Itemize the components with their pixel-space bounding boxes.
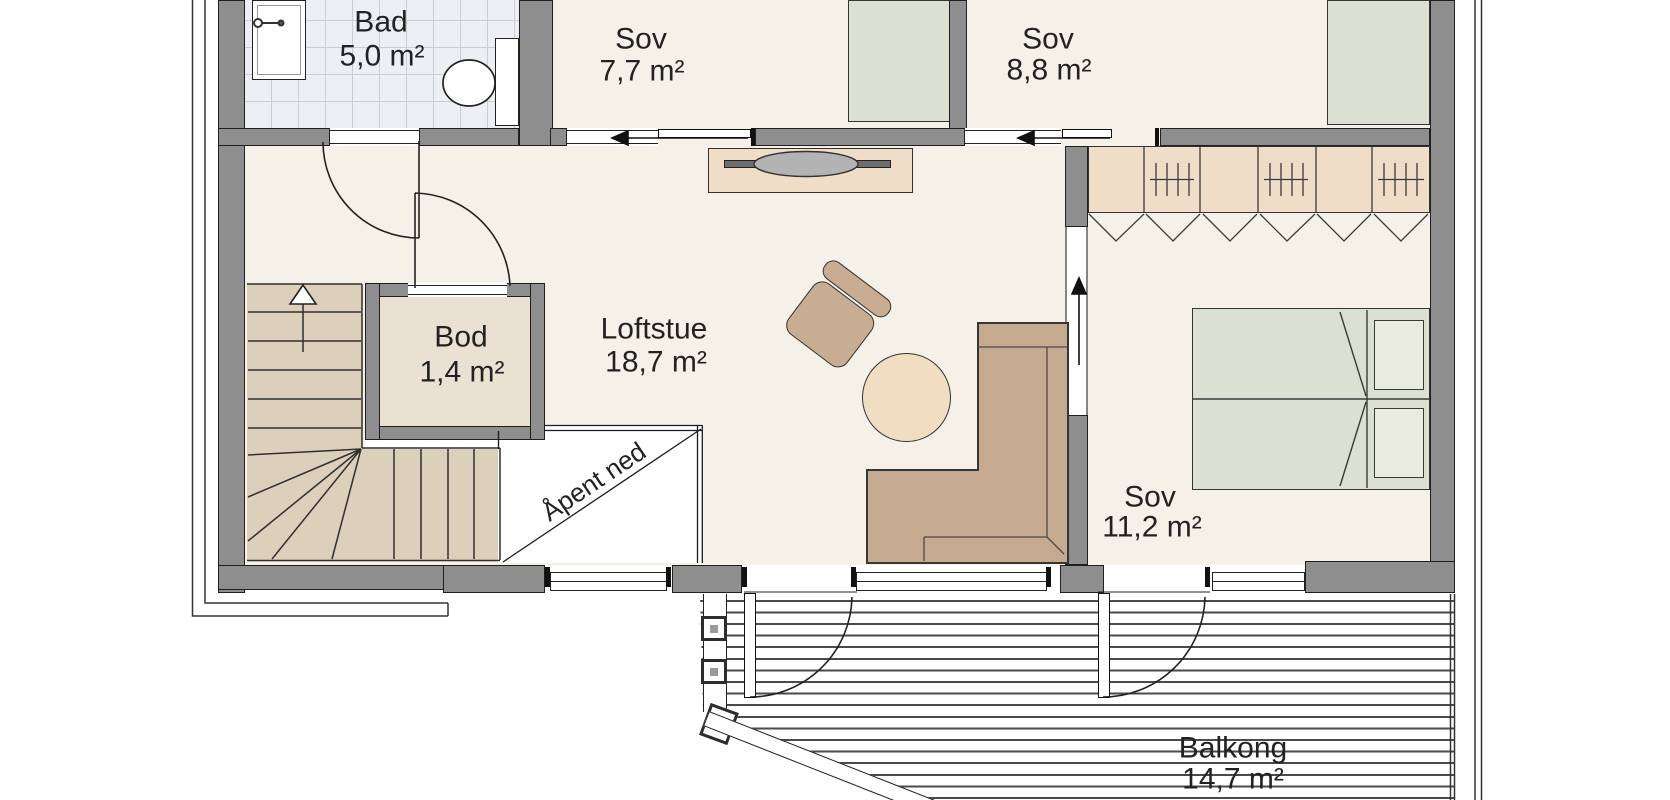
window-south-2: [856, 572, 1047, 591]
sliding-leaf-sov77: [658, 129, 751, 138]
room-area-sov-88: 8,8 m²: [1006, 54, 1091, 86]
shower-tub-inner: [257, 5, 301, 75]
window-south-1: [550, 572, 667, 591]
wall-sov77-sov88: [949, 0, 967, 146]
sov112-pocket-opening: [1065, 227, 1088, 415]
room-label-sov-77: Sov: [615, 23, 667, 55]
stairs-lower-run: [362, 448, 500, 560]
exterior-wall-right: [1430, 0, 1455, 593]
wall-bottom-pillar-c: [1060, 565, 1104, 593]
window-south-3: [1212, 572, 1305, 591]
room-area-sov-77: 7,7 m²: [599, 55, 684, 87]
window-jamb: [851, 567, 856, 587]
wall-bad-sov: [519, 0, 553, 146]
balcony-railing-left: [703, 594, 727, 712]
bod-wall-bottom: [365, 426, 545, 440]
sov77-door-opening: [567, 128, 658, 146]
room-area-balkong: 14,7 m²: [1182, 763, 1284, 795]
bod-door-opening: [408, 283, 507, 297]
room-area-loftstue: 18,7 m²: [605, 346, 707, 378]
wall-top-a: [218, 128, 330, 146]
window-jamb: [742, 567, 747, 587]
railing-post: [701, 616, 727, 641]
stairwell-void-top: [545, 425, 703, 432]
wall-sov112-lower: [1065, 415, 1088, 565]
wall-top-e: [1160, 128, 1430, 146]
balcony-door-leaf-1: [744, 593, 756, 698]
bad-door-opening: [330, 128, 419, 146]
wall-bottom-pillar-a: [443, 565, 545, 593]
stairwell-void-strip: [365, 440, 498, 449]
window-jamb: [666, 567, 671, 587]
wall-bad-sov-foot: [550, 128, 567, 146]
room-area-bod: 1,4 m²: [419, 356, 504, 388]
window-jamb: [1046, 567, 1051, 587]
railing-post: [701, 659, 727, 684]
exterior-wall-left: [218, 0, 245, 593]
stairs-upper-run: [247, 284, 362, 560]
window-jamb: [545, 567, 550, 587]
sliding-leaf-sov88: [1062, 129, 1112, 138]
pillow: [1374, 408, 1424, 478]
room-label-sov-88: Sov: [1022, 23, 1074, 55]
pillow: [1374, 320, 1424, 390]
window-jamb: [1205, 567, 1210, 587]
room-label-bod: Bod: [434, 321, 487, 353]
wardrobe: [1088, 146, 1430, 213]
wall-sov112-stub: [1065, 146, 1088, 227]
balcony-door-leaf-2: [1098, 593, 1110, 698]
bod-wall-left: [365, 283, 380, 440]
room-area-bad: 5,0 m²: [339, 40, 424, 72]
coffee-table: [862, 353, 951, 442]
toilet-cistern: [495, 38, 519, 126]
room-label-bad: Bad: [354, 6, 407, 38]
bod-wall-right: [530, 283, 545, 440]
bed-sov-88: [1327, 0, 1430, 125]
tv-set: [724, 160, 891, 168]
room-label-balkong: Balkong: [1179, 732, 1287, 764]
wall-bottom-pillar-b: [672, 565, 742, 593]
eaves-right: [1475, 0, 1482, 800]
room-label-loftstue: Loftstue: [601, 313, 708, 345]
sov88-door-opening: [965, 128, 1061, 146]
bed-sov-77: [848, 0, 952, 122]
door-jamb: [1155, 128, 1159, 146]
tv-bench: [708, 148, 913, 193]
room-area-sov-112: 11,2 m²: [1102, 511, 1201, 543]
door-jamb: [751, 128, 755, 146]
stairwell-void: [498, 431, 703, 563]
wall-bottom-corner: [1305, 561, 1455, 593]
room-label-sov-112: Sov: [1124, 481, 1176, 513]
wall-top-d: [755, 128, 965, 146]
wall-top-b: [419, 128, 519, 146]
floor-plan: Bad 5,0 m² Sov 7,7 m² Sov 8,8 m² Bod 1,4…: [0, 0, 1670, 800]
